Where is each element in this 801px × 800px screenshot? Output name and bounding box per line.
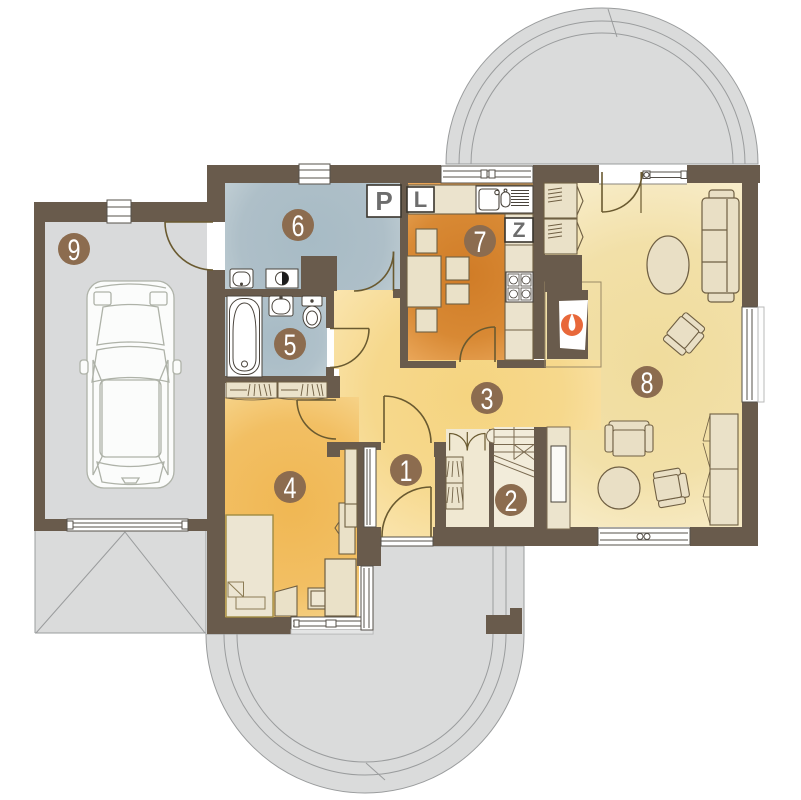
svg-text:P: P bbox=[375, 186, 392, 216]
svg-text:6: 6 bbox=[292, 210, 305, 243]
svg-text:4: 4 bbox=[284, 472, 297, 505]
svg-text:Z: Z bbox=[513, 219, 526, 242]
svg-text:8: 8 bbox=[641, 367, 654, 400]
svg-text:1: 1 bbox=[400, 455, 413, 488]
svg-text:2: 2 bbox=[505, 485, 518, 518]
svg-text:7: 7 bbox=[474, 226, 487, 259]
svg-text:3: 3 bbox=[481, 383, 494, 416]
svg-text:5: 5 bbox=[284, 329, 297, 362]
svg-text:L: L bbox=[414, 187, 427, 212]
svg-text:9: 9 bbox=[68, 234, 81, 267]
